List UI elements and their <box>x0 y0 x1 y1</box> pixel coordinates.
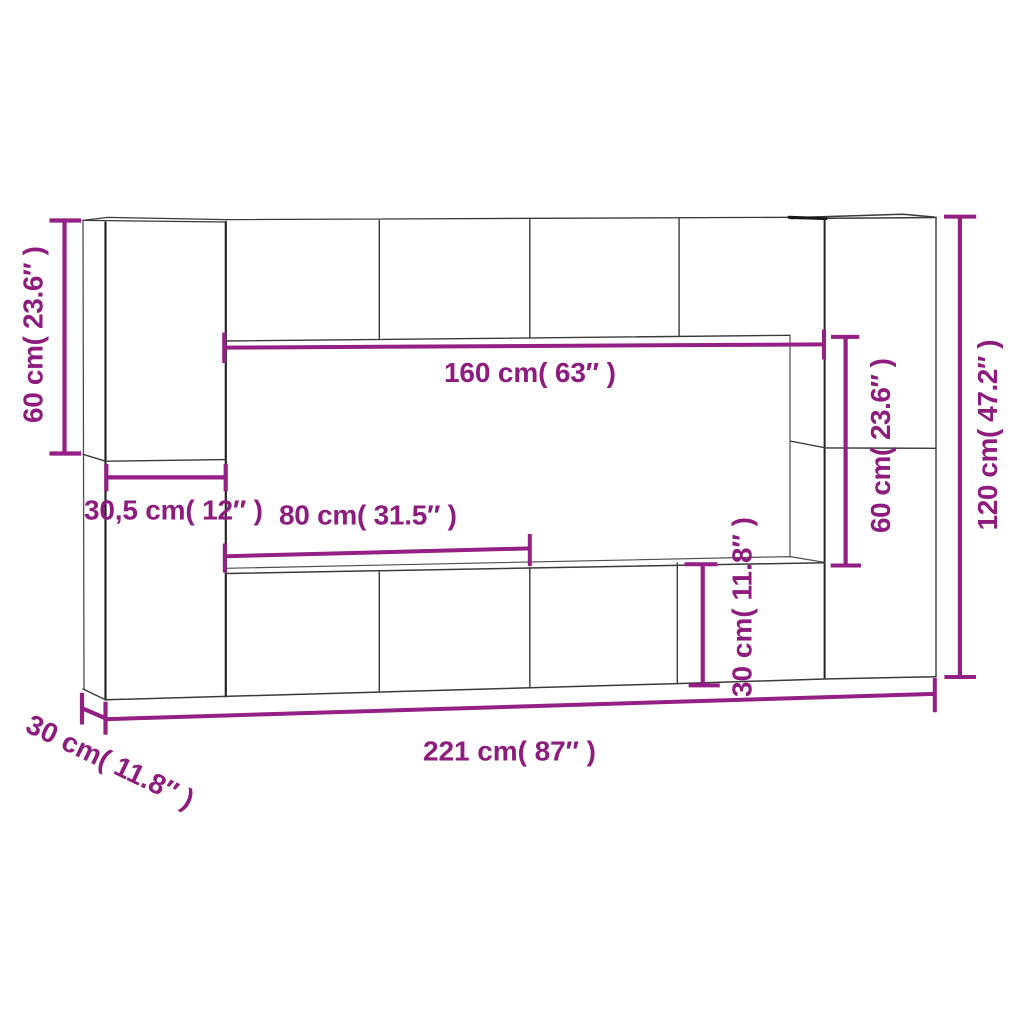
svg-text:30,5 cm( 12″ ): 30,5 cm( 12″ ) <box>84 495 263 526</box>
svg-text:160 cm( 63″ ): 160 cm( 63″ ) <box>444 357 616 388</box>
svg-text:221 cm( 87″ ): 221 cm( 87″ ) <box>423 736 596 767</box>
svg-text:120 cm( 47.2″ ): 120 cm( 47.2″ ) <box>972 339 1003 530</box>
svg-text:60 cm( 23.6″ ): 60 cm( 23.6″ ) <box>18 246 49 423</box>
svg-text:30 cm( 11.8″ ): 30 cm( 11.8″ ) <box>727 517 758 697</box>
svg-text:80 cm( 31.5″ ): 80 cm( 31.5″ ) <box>279 500 457 531</box>
svg-text:60 cm( 23.6″ ): 60 cm( 23.6″ ) <box>865 358 896 533</box>
